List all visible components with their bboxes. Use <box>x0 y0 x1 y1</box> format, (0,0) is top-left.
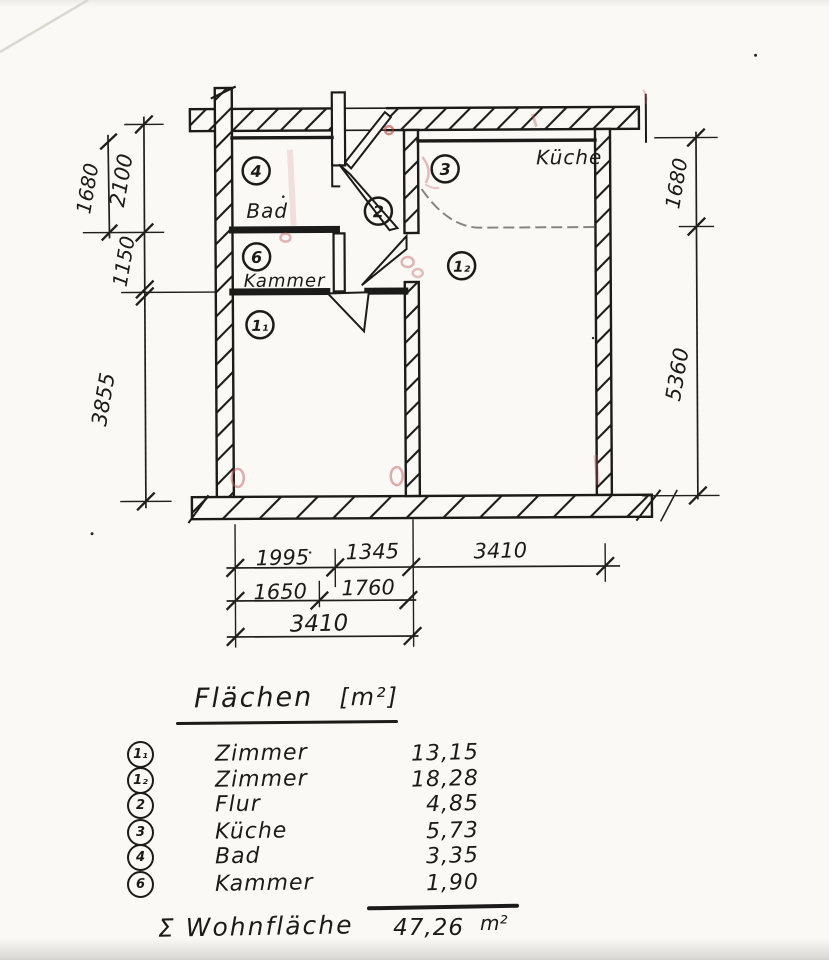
dim-bottom-1345: 1345 <box>345 539 399 564</box>
table-title-underline <box>176 720 398 725</box>
inner-face-bad <box>232 137 332 138</box>
svg-text:1₁: 1₁ <box>251 317 268 335</box>
table-title-unit: [m²] <box>339 683 399 712</box>
table-total-label: Σ Wohnfläche <box>158 910 354 942</box>
radiator-mark-middle <box>391 467 403 485</box>
row-room-name: Zimmer <box>215 766 308 793</box>
dimension-lines-left <box>83 116 217 510</box>
row-badge: 1₁ <box>127 741 154 768</box>
table-title-text: Flächen <box>194 682 314 715</box>
row-badge: 3 <box>127 819 154 846</box>
wall-right <box>595 129 612 495</box>
door-flur-zimmer <box>362 236 407 285</box>
svg-text:2: 2 <box>373 202 384 221</box>
dim-left-1150: 1150 <box>108 234 140 288</box>
row-badge: 4 <box>127 844 154 871</box>
scanned-floor-plan-sheet: 1680 2100 1150 3855 1680 5360 <box>0 0 829 960</box>
table-row: 2 Flur 4,85 <box>127 792 479 819</box>
row-room-name: Flur <box>215 792 261 818</box>
room-name-kammer: Kammer <box>244 270 326 291</box>
table-row: 4 Bad 3,35 <box>127 844 479 871</box>
row-room-name: Küche <box>215 818 288 844</box>
dim-bottom-3410-total: 3410 <box>289 610 348 637</box>
svg-text:4: 4 <box>250 162 262 181</box>
room-badge-zimmer2: 1₂ <box>448 252 475 279</box>
door-kammer <box>328 292 369 331</box>
row-area-value: 4,85 <box>389 791 480 818</box>
row-room-name: Kammer <box>215 870 314 897</box>
row-area-value: 13,15 <box>389 740 480 767</box>
row-room-name: Bad <box>215 844 261 870</box>
svg-text:6: 6 <box>251 248 262 267</box>
dashed-room-divider <box>422 189 595 228</box>
row-badge: 2 <box>127 792 154 819</box>
row-area-value: 1,90 <box>389 870 480 897</box>
wall-kammer-east <box>333 233 344 291</box>
dim-bottom-1995: 1995 <box>255 545 309 570</box>
wall-middle-upper <box>404 130 419 233</box>
table-title: Flächen[m²] <box>194 681 399 715</box>
row-area-value: 5,73 <box>389 818 480 845</box>
svg-text:3: 3 <box>440 160 451 179</box>
wall-middle-lower <box>405 282 420 496</box>
row-area-value: 18,28 <box>389 766 480 793</box>
room-badge-bad: 4 <box>243 157 270 184</box>
table-row: 1₁ Zimmer 13,15 <box>127 741 479 768</box>
row-room-name: Zimmer <box>215 740 308 767</box>
row-badge: 1₂ <box>127 767 154 794</box>
room-badge-zimmer1: 1₁ <box>246 311 273 338</box>
wall-top-band <box>190 107 639 131</box>
dim-left-3855: 3855 <box>87 371 120 428</box>
row-badge: 6 <box>127 871 154 898</box>
dim-bottom-3410-top: 3410 <box>473 538 527 563</box>
wall-left <box>215 88 234 508</box>
table-total-unit: m² <box>480 911 508 935</box>
table-total-separator <box>367 904 519 910</box>
table-row: 6 Kammer 1,90 <box>127 871 479 898</box>
inner-face-kueche <box>418 140 595 141</box>
wall-shaft-step <box>332 165 339 186</box>
dim-bottom-1650: 1650 <box>253 579 307 604</box>
room-badge-kammer: 6 <box>243 243 270 270</box>
dim-bottom-1760: 1760 <box>341 575 395 600</box>
room-name-bad: Bad <box>246 199 288 223</box>
dimension-labels-bottom: 1995 1345 3410 1650 1760 3410 <box>252 536 529 638</box>
table-row: 3 Küche 5,73 <box>127 819 479 846</box>
dim-left-1680: 1680 <box>71 161 103 215</box>
row-area-value: 3,35 <box>389 843 480 870</box>
dim-right-1680: 1680 <box>660 156 692 210</box>
room-name-kueche: Küche <box>536 145 602 169</box>
dim-right-5360: 5360 <box>661 346 694 403</box>
dimension-labels-right: 1680 5360 <box>660 156 694 403</box>
svg-text:1₂: 1₂ <box>453 258 471 276</box>
room-labels: 4 Bad 2 3 Küche 6 Kammer <box>243 145 604 338</box>
floor-plan-drawing: 1680 2100 1150 3855 1680 5360 <box>0 0 829 660</box>
wall-bad-south <box>232 229 336 230</box>
room-badge-kueche: 3 <box>432 155 459 182</box>
table-row: 1₂ Zimmer 18,28 <box>127 767 479 794</box>
table-total-value: 47,26 <box>392 915 464 941</box>
wall-bottom-band <box>192 495 652 519</box>
room-badge-flur: 2 <box>365 198 392 225</box>
wall-bad-east-shaft <box>332 92 345 165</box>
dim-left-2100: 2100 <box>105 152 138 209</box>
dimension-labels-left: 1680 2100 1150 3855 <box>71 152 141 428</box>
